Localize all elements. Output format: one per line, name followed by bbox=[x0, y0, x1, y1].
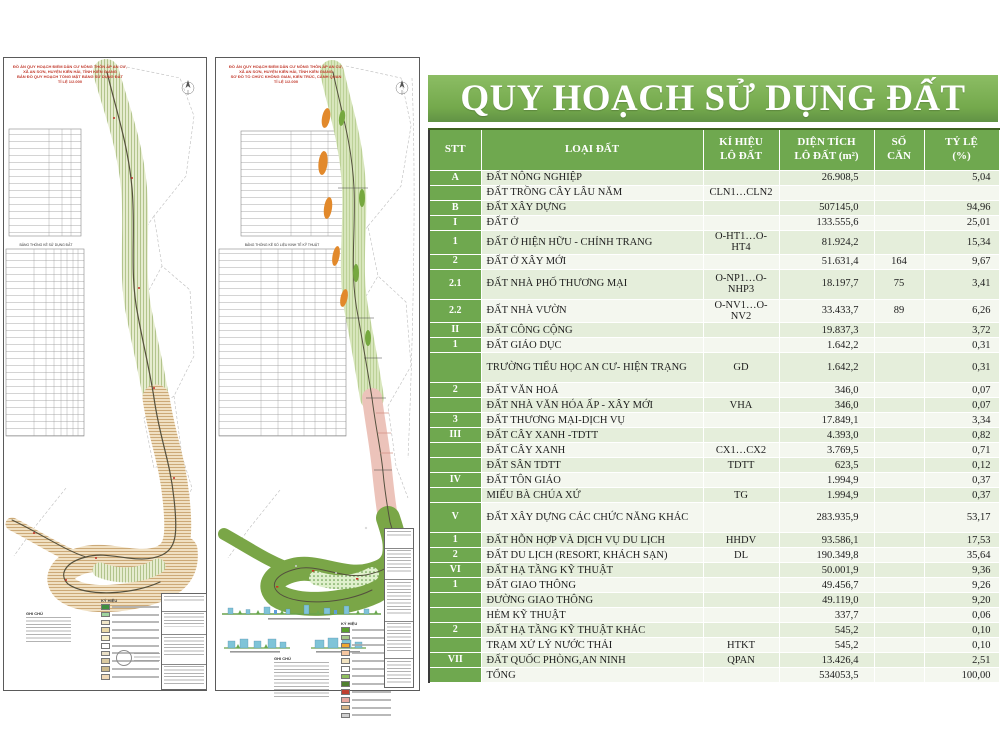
table-header-row: STT LOẠI ĐẤT KÍ HIỆU LÔ ĐẤT DIỆN TÍCH LÔ… bbox=[429, 129, 999, 171]
cell-stt: A bbox=[429, 171, 481, 186]
cell-stt bbox=[429, 488, 481, 503]
cell-stt bbox=[429, 638, 481, 653]
legend-swatch bbox=[101, 643, 110, 649]
cell-stt bbox=[429, 353, 481, 383]
legend-swatch bbox=[101, 674, 110, 680]
cell-tyle: 0,82 bbox=[924, 428, 999, 443]
cell-stt bbox=[429, 458, 481, 473]
cell-stt: IV bbox=[429, 473, 481, 488]
cell-dientich: 50.001,9 bbox=[779, 563, 874, 578]
cell-socan bbox=[874, 428, 924, 443]
cell-tyle: 0,10 bbox=[924, 638, 999, 653]
cell-socan bbox=[874, 338, 924, 353]
cell-loai: ĐẤT GIAO THÔNG bbox=[481, 578, 703, 593]
cell-socan bbox=[874, 413, 924, 428]
strip-green-tourism bbox=[272, 518, 394, 604]
cell-dientich bbox=[779, 186, 874, 201]
cell-stt bbox=[429, 186, 481, 201]
cell-loai: ĐẤT NHÀ VĂN HÓA ẤP - XÂY MỚI bbox=[481, 398, 703, 413]
table-row: BĐẤT XÂY DỰNG507145,094,96 bbox=[429, 201, 999, 216]
legend-label-line bbox=[112, 606, 159, 608]
statistics-table-caption: BẢNG THỐNG KÊ SỬ DỤNG ĐẤT bbox=[20, 242, 73, 247]
cell-dientich: 81.924,2 bbox=[779, 231, 874, 255]
legend-swatch bbox=[341, 650, 350, 656]
cell-socan bbox=[874, 668, 924, 683]
legend-label-line bbox=[352, 714, 391, 716]
legend-swatch bbox=[101, 658, 110, 664]
cell-socan bbox=[874, 638, 924, 653]
land-use-planning-sheet: { "banner": { "title": "QUY HOẠCH SỬ DỤN… bbox=[0, 0, 1000, 750]
table-row: IIĐẤT CÔNG CỘNG19.837,33,72 bbox=[429, 323, 999, 338]
cell-socan bbox=[874, 323, 924, 338]
table-row: 3ĐẤT THƯƠNG MẠI-DỊCH VỤ17.849,13,34 bbox=[429, 413, 999, 428]
table-row: VĐẤT XÂY DỰNG CÁC CHỨC NĂNG KHÁC283.935,… bbox=[429, 503, 999, 533]
map2-title-text: ĐỒ ÁN QUY HOẠCH ĐIỂM DÂN CƯ NÔNG THÔN ẤP… bbox=[222, 64, 350, 84]
cell-kihieu: HHDV bbox=[703, 533, 779, 548]
land-use-table: STT LOẠI ĐẤT KÍ HIỆU LÔ ĐẤT DIỆN TÍCH LÔ… bbox=[428, 128, 1000, 683]
cell-dientich: 337,7 bbox=[779, 608, 874, 623]
cell-socan bbox=[874, 353, 924, 383]
table-row: VIĐẤT HẠ TẦNG KỸ THUẬT50.001,99,36 bbox=[429, 563, 999, 578]
cell-stt: 2 bbox=[429, 383, 481, 398]
cell-loai: TRƯỜNG TIỂU HỌC AN CƯ- HIỆN TRẠNG bbox=[481, 353, 703, 383]
cell-tyle: 5,04 bbox=[924, 171, 999, 186]
legend-swatch bbox=[341, 697, 350, 703]
cell-kihieu bbox=[703, 428, 779, 443]
title-block-line bbox=[164, 637, 204, 657]
cell-loai: ĐẤT Ở XÂY MỚI bbox=[481, 254, 703, 269]
title-block-line bbox=[387, 582, 411, 614]
notes-text-lines bbox=[26, 617, 71, 643]
legend-item bbox=[101, 674, 159, 680]
cell-stt: 2 bbox=[429, 548, 481, 563]
legend-swatch bbox=[341, 643, 350, 649]
cell-tyle: 3,72 bbox=[924, 323, 999, 338]
cell-dientich: 623,5 bbox=[779, 458, 874, 473]
cell-socan bbox=[874, 503, 924, 533]
cell-dientich: 133.555,6 bbox=[779, 216, 874, 231]
cell-kihieu: O-NV1…O-NV2 bbox=[703, 299, 779, 323]
cell-tyle: 9,20 bbox=[924, 593, 999, 608]
page-title-banner: QUY HOẠCH SỬ DỤNG ĐẤT bbox=[428, 75, 998, 122]
cell-dientich: 33.433,7 bbox=[779, 299, 874, 323]
legend-swatch bbox=[101, 635, 110, 641]
cell-loai: ĐẤT THƯƠNG MẠI-DỊCH VỤ bbox=[481, 413, 703, 428]
table-row: 2ĐẤT Ở XÂY MỚI51.631,41649,67 bbox=[429, 254, 999, 269]
cell-kihieu: GD bbox=[703, 353, 779, 383]
map1-legend: KÝ HIỆU bbox=[101, 598, 159, 682]
legend-swatch bbox=[101, 612, 110, 618]
legend-swatch bbox=[101, 651, 110, 657]
cell-tyle: 0,37 bbox=[924, 473, 999, 488]
cell-stt: VI bbox=[429, 563, 481, 578]
cell-socan bbox=[874, 383, 924, 398]
legend-swatch bbox=[341, 705, 350, 711]
cell-loai: ĐẤT NÔNG NGHIỆP bbox=[481, 171, 703, 186]
page-title: QUY HOẠCH SỬ DỤNG ĐẤT bbox=[460, 77, 965, 120]
cell-loai: ĐẤT QUỐC PHÒNG,AN NINH bbox=[481, 653, 703, 668]
cell-dientich: 1.642,2 bbox=[779, 338, 874, 353]
cell-stt bbox=[429, 398, 481, 413]
table-row: HẺM KỸ THUẬT337,70,06 bbox=[429, 608, 999, 623]
cell-socan bbox=[874, 653, 924, 668]
cell-dientich: 49.119,0 bbox=[779, 593, 874, 608]
strip-agriculture bbox=[106, 72, 156, 398]
cell-kihieu: DL bbox=[703, 548, 779, 563]
legend-label-line bbox=[112, 629, 159, 631]
cell-tyle: 0,06 bbox=[924, 608, 999, 623]
legend-label-line bbox=[112, 645, 159, 647]
legend-swatch bbox=[101, 627, 110, 633]
cell-kihieu bbox=[703, 171, 779, 186]
table-row: IVĐẤT TÔN GIÁO1.994,90,37 bbox=[429, 473, 999, 488]
title-block-line bbox=[387, 661, 411, 685]
cell-loai: ĐẤT NHÀ VƯỜN bbox=[481, 299, 703, 323]
cell-loai: ĐẤT Ở bbox=[481, 216, 703, 231]
cell-dientich: 1.994,9 bbox=[779, 473, 874, 488]
table-row: 1ĐẤT HỖN HỢP VÀ DỊCH VỤ DU LỊCHHHDV93.58… bbox=[429, 533, 999, 548]
cell-tyle: 0,12 bbox=[924, 458, 999, 473]
legend-label-line bbox=[352, 699, 391, 701]
legend-swatch bbox=[341, 689, 350, 695]
cell-stt: 2 bbox=[429, 623, 481, 638]
cell-loai: ĐẤT HẠ TẦNG KỸ THUẬT bbox=[481, 563, 703, 578]
cell-tyle: 94,96 bbox=[924, 201, 999, 216]
table-row: 2ĐẤT DU LỊCH (RESORT, KHÁCH SẠN)DL190.34… bbox=[429, 548, 999, 563]
legend-swatch bbox=[341, 681, 350, 687]
statistics-table: BẢNG THỐNG KÊ SỬ DỤNG ĐẤT bbox=[6, 242, 84, 436]
header-ty-le: TỶ LỆ (%) bbox=[924, 129, 999, 171]
cell-loai: ĐẤT HẠ TẦNG KỸ THUẬT KHÁC bbox=[481, 623, 703, 638]
cell-stt: 1 bbox=[429, 231, 481, 255]
cell-dientich: 13.426,4 bbox=[779, 653, 874, 668]
cell-tyle: 53,17 bbox=[924, 503, 999, 533]
cell-kihieu bbox=[703, 473, 779, 488]
cell-dientich: 346,0 bbox=[779, 383, 874, 398]
legend-item bbox=[101, 620, 159, 626]
legend-swatch bbox=[101, 604, 110, 610]
table-row: IĐẤT Ở133.555,625,01 bbox=[429, 216, 999, 231]
header-dien-tich: DIỆN TÍCH LÔ ĐẤT (m²) bbox=[779, 129, 874, 171]
cell-loai: ĐẤT GIÁO DỤC bbox=[481, 338, 703, 353]
table-row: 1ĐẤT Ở HIỆN HỮU - CHỈNH TRANGO-HT1…O-HT4… bbox=[429, 231, 999, 255]
cell-dientich: 1.642,2 bbox=[779, 353, 874, 383]
cell-socan bbox=[874, 398, 924, 413]
legend-swatch bbox=[341, 666, 350, 672]
notes-title: GHI CHÚ bbox=[26, 611, 71, 616]
cell-stt: 2.2 bbox=[429, 299, 481, 323]
table-row: MIẾU BÀ CHÚA XỨTG1.994,90,37 bbox=[429, 488, 999, 503]
elevation-group-1 bbox=[224, 639, 290, 653]
title-block-line bbox=[387, 550, 411, 572]
cell-loai: ĐẤT SÂN TDTT bbox=[481, 458, 703, 473]
legend-item bbox=[101, 604, 159, 610]
cell-dientich: 283.935,9 bbox=[779, 503, 874, 533]
header-stt: STT bbox=[429, 129, 481, 171]
cell-dientich: 545,2 bbox=[779, 638, 874, 653]
legend-label-line bbox=[112, 668, 159, 670]
cell-loai: ĐẤT XÂY DỰNG bbox=[481, 201, 703, 216]
title-block-line bbox=[387, 531, 411, 537]
cell-tyle: 17,53 bbox=[924, 533, 999, 548]
cell-socan bbox=[874, 443, 924, 458]
cell-tyle: 3,41 bbox=[924, 269, 999, 299]
table-row: 1ĐẤT GIÁO DỤC1.642,20,31 bbox=[429, 338, 999, 353]
cell-dientich: 346,0 bbox=[779, 398, 874, 413]
cell-dientich: 1.994,9 bbox=[779, 488, 874, 503]
cell-socan bbox=[874, 171, 924, 186]
cell-kihieu bbox=[703, 216, 779, 231]
table-row: IIIĐẤT CÂY XANH -TDTT4.393,00,82 bbox=[429, 428, 999, 443]
cell-stt: 1 bbox=[429, 578, 481, 593]
cell-socan bbox=[874, 548, 924, 563]
legend-swatch bbox=[341, 674, 350, 680]
cell-dientich: 19.837,3 bbox=[779, 323, 874, 338]
legend-swatch bbox=[341, 627, 350, 633]
cell-tyle: 0,31 bbox=[924, 338, 999, 353]
cell-kihieu: QPAN bbox=[703, 653, 779, 668]
cell-kihieu bbox=[703, 338, 779, 353]
cell-kihieu bbox=[703, 254, 779, 269]
strip-west-arm bbox=[12, 524, 84, 560]
cell-stt: 1 bbox=[429, 338, 481, 353]
cell-tyle: 25,01 bbox=[924, 216, 999, 231]
title-block-line bbox=[164, 596, 204, 602]
cell-loai: ĐẤT DU LỊCH (RESORT, KHÁCH SẠN) bbox=[481, 548, 703, 563]
table-row: TỔNG534053,5100,00 bbox=[429, 668, 999, 683]
cell-loai: ĐẤT CÔNG CỘNG bbox=[481, 323, 703, 338]
cell-dientich: 51.631,4 bbox=[779, 254, 874, 269]
coordinate-table bbox=[9, 129, 81, 236]
cell-tyle: 0,10 bbox=[924, 623, 999, 638]
table-row: 2.2ĐẤT NHÀ VƯỜNO-NV1…O-NV233.433,7896,26 bbox=[429, 299, 999, 323]
cell-dientich: 534053,5 bbox=[779, 668, 874, 683]
table-row: 1ĐẤT GIAO THÔNG49.456,79,26 bbox=[429, 578, 999, 593]
cell-socan: 89 bbox=[874, 299, 924, 323]
strip-green-pocket bbox=[100, 566, 158, 575]
cell-dientich: 49.456,7 bbox=[779, 578, 874, 593]
cell-kihieu: TG bbox=[703, 488, 779, 503]
notes-title: GHI CHÚ bbox=[274, 656, 329, 661]
table-row: ĐẤT SÂN TDTTTDTT623,50,12 bbox=[429, 458, 999, 473]
statistics-table: BẢNG THỐNG KÊ SỐ LIỆU KINH TẾ KỸ THUẬT bbox=[219, 242, 346, 436]
cell-socan bbox=[874, 593, 924, 608]
cell-stt bbox=[429, 593, 481, 608]
cell-tyle: 3,34 bbox=[924, 413, 999, 428]
cell-stt bbox=[429, 443, 481, 458]
table-row: TRẠM XỬ LÝ NƯỚC THẢIHTKT545,20,10 bbox=[429, 638, 999, 653]
cell-loai: TRẠM XỬ LÝ NƯỚC THẢI bbox=[481, 638, 703, 653]
cell-tyle: 9,36 bbox=[924, 563, 999, 578]
title-block-line bbox=[164, 613, 204, 627]
cell-tyle: 0,31 bbox=[924, 353, 999, 383]
cell-loai: ĐẤT XÂY DỰNG CÁC CHỨC NĂNG KHÁC bbox=[481, 503, 703, 533]
legend-item bbox=[101, 643, 159, 649]
cell-socan bbox=[874, 578, 924, 593]
cell-dientich: 507145,0 bbox=[779, 201, 874, 216]
cell-loai: ĐẤT CÂY XANH -TDTT bbox=[481, 428, 703, 443]
cell-tyle: 35,64 bbox=[924, 548, 999, 563]
map2-title-block bbox=[384, 528, 414, 688]
legend-item bbox=[341, 689, 391, 695]
north-arrow-icon bbox=[182, 80, 194, 95]
cell-socan: 75 bbox=[874, 269, 924, 299]
north-arrow-icon bbox=[396, 80, 408, 95]
legend-item bbox=[101, 666, 159, 672]
cell-stt bbox=[429, 608, 481, 623]
cell-kihieu bbox=[703, 608, 779, 623]
cell-dientich: 93.586,1 bbox=[779, 533, 874, 548]
cell-kihieu: O-NP1…O-NHP3 bbox=[703, 269, 779, 299]
header-ki-hieu: KÍ HIỆU LÔ ĐẤT bbox=[703, 129, 779, 171]
cell-tyle: 0,07 bbox=[924, 383, 999, 398]
legend-swatch bbox=[101, 666, 110, 672]
cell-dientich: 4.393,0 bbox=[779, 428, 874, 443]
table-row: TRƯỜNG TIỂU HỌC AN CƯ- HIỆN TRẠNGGD1.642… bbox=[429, 353, 999, 383]
cell-socan bbox=[874, 216, 924, 231]
coordinate-table bbox=[241, 131, 346, 236]
table-row: ĐẤT NHÀ VĂN HÓA ẤP - XÂY MỚIVHA346,00,07 bbox=[429, 398, 999, 413]
cell-socan bbox=[874, 608, 924, 623]
legend-swatch bbox=[341, 658, 350, 664]
table-row: VIIĐẤT QUỐC PHÒNG,AN NINHQPAN13.426,42,5… bbox=[429, 653, 999, 668]
cell-loai: ĐẤT TÔN GIÁO bbox=[481, 473, 703, 488]
cell-kihieu bbox=[703, 593, 779, 608]
cell-socan bbox=[874, 488, 924, 503]
cell-kihieu bbox=[703, 578, 779, 593]
cell-kihieu bbox=[703, 563, 779, 578]
cell-stt: 3 bbox=[429, 413, 481, 428]
stamp-caption-lines bbox=[134, 653, 160, 662]
cell-loai: TỔNG bbox=[481, 668, 703, 683]
legend-label-line bbox=[112, 621, 159, 623]
cell-kihieu bbox=[703, 201, 779, 216]
cell-socan: 164 bbox=[874, 254, 924, 269]
cell-dientich: 17.849,1 bbox=[779, 413, 874, 428]
cell-stt: 2 bbox=[429, 254, 481, 269]
cell-tyle: 2,51 bbox=[924, 653, 999, 668]
cell-kihieu: HTKT bbox=[703, 638, 779, 653]
map-panel-master-plan: ĐỒ ÁN QUY HOẠCH ĐIỂM DÂN CƯ NÔNG THÔN ẤP… bbox=[3, 57, 207, 691]
cell-kihieu bbox=[703, 668, 779, 683]
cell-stt: B bbox=[429, 201, 481, 216]
cell-stt bbox=[429, 668, 481, 683]
cell-kihieu bbox=[703, 323, 779, 338]
cell-socan bbox=[874, 231, 924, 255]
cell-socan bbox=[874, 623, 924, 638]
legend-item bbox=[341, 713, 391, 719]
cell-kihieu: CX1…CX2 bbox=[703, 443, 779, 458]
cell-tyle: 0,37 bbox=[924, 488, 999, 503]
cell-stt: 1 bbox=[429, 533, 481, 548]
cell-socan bbox=[874, 533, 924, 548]
cell-kihieu: TDTT bbox=[703, 458, 779, 473]
cell-loai: ĐẤT HỖN HỢP VÀ DỊCH VỤ DU LỊCH bbox=[481, 533, 703, 548]
cell-kihieu bbox=[703, 503, 779, 533]
cell-tyle: 0,07 bbox=[924, 398, 999, 413]
cell-kihieu: VHA bbox=[703, 398, 779, 413]
cell-stt: VII bbox=[429, 653, 481, 668]
cell-socan bbox=[874, 458, 924, 473]
cell-kihieu bbox=[703, 413, 779, 428]
cell-tyle: 9,67 bbox=[924, 254, 999, 269]
cell-socan bbox=[874, 201, 924, 216]
cell-socan bbox=[874, 473, 924, 488]
strip-west-arm bbox=[224, 534, 294, 570]
cell-tyle: 0,71 bbox=[924, 443, 999, 458]
cell-tyle bbox=[924, 186, 999, 201]
table-row: 2.1ĐẤT NHÀ PHỐ THƯƠNG MẠIO-NP1…O-NHP318.… bbox=[429, 269, 999, 299]
cell-dientich: 26.908,5 bbox=[779, 171, 874, 186]
title-block-line bbox=[164, 666, 204, 686]
cell-socan bbox=[874, 186, 924, 201]
cell-stt: II bbox=[429, 323, 481, 338]
table-row: AĐẤT NÔNG NGHIỆP26.908,55,04 bbox=[429, 171, 999, 186]
cell-tyle: 15,34 bbox=[924, 231, 999, 255]
cell-loai: ĐẤT TRỒNG CÂY LÂU NĂM bbox=[481, 186, 703, 201]
header-loai-dat: LOẠI ĐẤT bbox=[481, 129, 703, 171]
title-block-line bbox=[387, 623, 411, 651]
table-row: ĐẤT TRỒNG CÂY LÂU NĂMCLN1…CLN2 bbox=[429, 186, 999, 201]
legend-swatch bbox=[101, 620, 110, 626]
cell-stt: V bbox=[429, 503, 481, 533]
cell-stt: 2.1 bbox=[429, 269, 481, 299]
cell-loai: MIẾU BÀ CHÚA XỨ bbox=[481, 488, 703, 503]
legend-label-line bbox=[112, 637, 159, 639]
legend-swatch bbox=[341, 713, 350, 719]
cell-loai: ĐƯỜNG GIAO THÔNG bbox=[481, 593, 703, 608]
map2-notes: GHI CHÚ bbox=[274, 656, 329, 698]
cell-stt: I bbox=[429, 216, 481, 231]
elevation-caption-line bbox=[268, 618, 330, 620]
approval-stamp bbox=[116, 650, 132, 666]
cell-loai: ĐẤT CÂY XANH bbox=[481, 443, 703, 458]
legend-item bbox=[101, 612, 159, 618]
map1-notes: GHI CHÚ bbox=[26, 611, 71, 643]
cell-kihieu bbox=[703, 383, 779, 398]
cell-loai: HẺM KỸ THUẬT bbox=[481, 608, 703, 623]
cell-kihieu: O-HT1…O-HT4 bbox=[703, 231, 779, 255]
cell-dientich: 545,2 bbox=[779, 623, 874, 638]
table-row: ĐẤT CÂY XANHCX1…CX23.769,50,71 bbox=[429, 443, 999, 458]
table-row: ĐƯỜNG GIAO THÔNG49.119,09,20 bbox=[429, 593, 999, 608]
cell-tyle: 6,26 bbox=[924, 299, 999, 323]
legend-label-line bbox=[352, 707, 391, 709]
map1-title-text: ĐỒ ÁN QUY HOẠCH ĐIỂM DÂN CƯ NÔNG THÔN ẤP… bbox=[6, 64, 134, 84]
notes-text-lines bbox=[274, 662, 329, 698]
map-panel-landscape-diagram: ĐỒ ÁN QUY HOẠCH ĐIỂM DÂN CƯ NÔNG THÔN ẤP… bbox=[215, 57, 420, 691]
legend-item bbox=[341, 705, 391, 711]
header-so-can: SỐ CĂN bbox=[874, 129, 924, 171]
cell-tyle: 100,00 bbox=[924, 668, 999, 683]
table-row: 2ĐẤT VĂN HOÁ346,00,07 bbox=[429, 383, 999, 398]
legend-item bbox=[341, 697, 391, 703]
cell-kihieu bbox=[703, 623, 779, 638]
cell-dientich: 18.197,7 bbox=[779, 269, 874, 299]
cell-dientich: 190.349,8 bbox=[779, 548, 874, 563]
cell-kihieu: CLN1…CLN2 bbox=[703, 186, 779, 201]
cell-loai: ĐẤT VĂN HOÁ bbox=[481, 383, 703, 398]
table-row: 2ĐẤT HẠ TẦNG KỸ THUẬT KHÁC545,20,10 bbox=[429, 623, 999, 638]
cell-stt: III bbox=[429, 428, 481, 443]
legend-item bbox=[101, 627, 159, 633]
legend-label-line bbox=[112, 676, 159, 678]
legend-item bbox=[101, 635, 159, 641]
legend-label-line bbox=[112, 614, 159, 616]
map1-title-block bbox=[161, 593, 207, 690]
cell-dientich: 3.769,5 bbox=[779, 443, 874, 458]
legend-title: KÝ HIỆU bbox=[101, 598, 159, 603]
